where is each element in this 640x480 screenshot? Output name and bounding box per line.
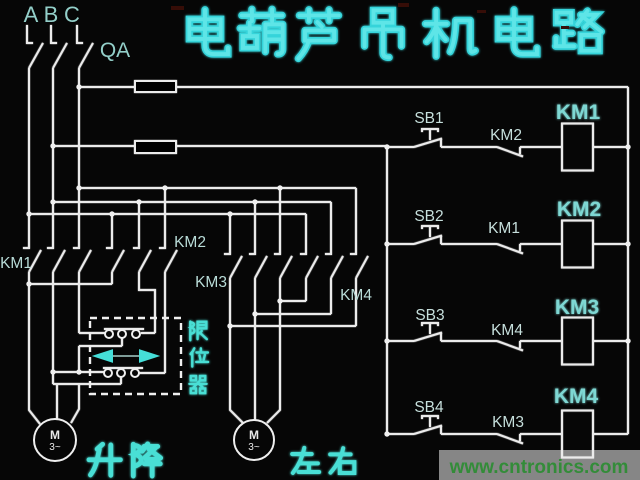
svg-text:QA: QA (100, 39, 130, 62)
svg-text:C: C (64, 2, 80, 27)
svg-text:KM1: KM1 (556, 101, 601, 124)
svg-text:KM2: KM2 (490, 127, 522, 144)
svg-text:B: B (44, 2, 59, 27)
svg-text:KM3: KM3 (195, 274, 227, 291)
svg-text:KM4: KM4 (340, 287, 372, 304)
svg-text:KM1: KM1 (488, 220, 520, 237)
svg-text:A: A (24, 2, 39, 27)
svg-text:KM1: KM1 (0, 255, 32, 272)
svg-text:KM2: KM2 (174, 234, 206, 251)
svg-text:SB4: SB4 (414, 399, 444, 416)
svg-text:KM4: KM4 (491, 322, 523, 339)
svg-text:3~: 3~ (49, 442, 61, 453)
svg-text:3~: 3~ (248, 442, 260, 453)
svg-text:KM3: KM3 (555, 296, 599, 319)
svg-text:KM3: KM3 (492, 414, 524, 431)
svg-text:M: M (50, 428, 60, 442)
svg-text:SB1: SB1 (414, 110, 443, 127)
svg-text:www.cntronics.com: www.cntronics.com (449, 457, 629, 478)
svg-text:SB2: SB2 (414, 208, 443, 225)
svg-text:KM4: KM4 (554, 385, 599, 408)
svg-text:SB3: SB3 (415, 307, 444, 324)
svg-text:M: M (249, 428, 259, 442)
svg-text:KM2: KM2 (557, 198, 601, 221)
